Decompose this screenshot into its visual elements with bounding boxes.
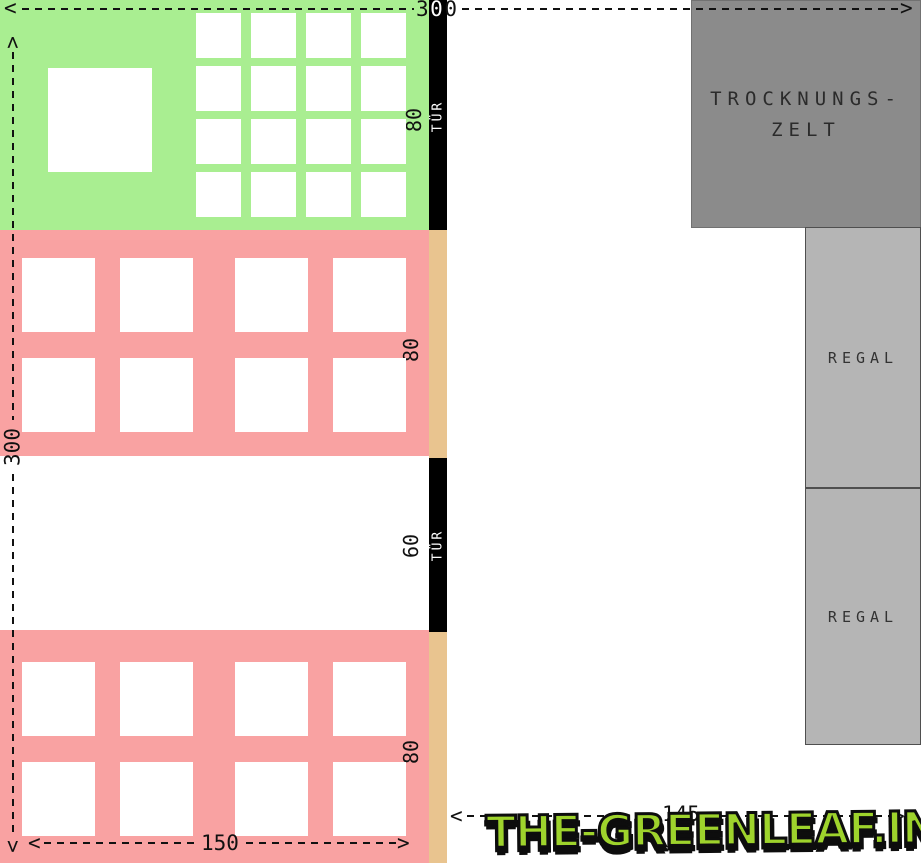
watermark-logo: THE-GREENLEAF.IN [486, 807, 921, 856]
plant-cell [306, 172, 351, 217]
shelf-2-label: REGAL [828, 608, 898, 626]
shelf-2-box: REGAL [805, 488, 921, 745]
arrow-right-icon: > [900, 0, 913, 19]
arrow-left-icon: < [450, 806, 463, 827]
pot-cell [333, 358, 406, 432]
shelf-1-label: REGAL [828, 349, 898, 367]
door-top-bar: TÜR [429, 0, 447, 231]
shelf-1-box: REGAL [805, 227, 921, 488]
dim-top-label: 300 [416, 0, 458, 20]
plant-cell [196, 119, 241, 164]
dim-left-label: 300 [3, 428, 24, 466]
pot-cell [333, 258, 406, 332]
plant-cell [306, 119, 351, 164]
plant-cell [196, 13, 241, 58]
plant-cell [361, 13, 406, 58]
pot-cell [120, 258, 193, 332]
dim-top-line-seg1 [22, 8, 414, 10]
dim-top-line-seg2 [462, 8, 898, 10]
pot-cell [235, 258, 308, 332]
door-mid-width-label: 60 [399, 534, 423, 558]
dim-bottom-label: 150 [201, 833, 239, 854]
pot-cell [235, 762, 308, 836]
plant-cell [361, 119, 406, 164]
bed2-width-label: 80 [399, 740, 423, 764]
arrow-right-icon: > [397, 833, 410, 854]
dim-left-line-seg1 [12, 52, 14, 420]
drying-tent-label-line1: TROCKNUNGS- [710, 88, 902, 110]
plant-cell [361, 172, 406, 217]
plant-cell [251, 119, 296, 164]
pot-cell [120, 662, 193, 736]
white-square-large [48, 68, 152, 172]
pot-cell [22, 358, 95, 432]
pot-cell [22, 762, 95, 836]
door-top-label: TÜR [431, 99, 446, 131]
drying-tent-box: TROCKNUNGS- ZELT [691, 0, 921, 228]
dim-bottom-line-seg2 [246, 842, 396, 844]
pot-cell [22, 258, 95, 332]
dim-bottom-line-seg1 [44, 842, 197, 844]
pot-cell [22, 662, 95, 736]
plant-cell [196, 66, 241, 111]
wall-strip-1 [429, 230, 447, 458]
plant-cell [306, 66, 351, 111]
pot-cell [120, 358, 193, 432]
plant-cell [251, 13, 296, 58]
plant-cell [251, 66, 296, 111]
floor-plan: TÜR TÜR 80 80 60 80 TROCKNUNGS- ZELT REG… [0, 0, 921, 863]
arrow-left-icon: < [4, 0, 17, 19]
door-mid-label: TÜR [431, 529, 446, 561]
plant-cell [196, 172, 241, 217]
arrow-left-icon: < [28, 833, 41, 854]
plant-cell [361, 66, 406, 111]
dim-left-line-seg2 [12, 474, 14, 834]
plant-cell [306, 13, 351, 58]
pot-cell [235, 662, 308, 736]
arrow-down-icon: > [2, 840, 23, 853]
pot-cell [120, 762, 193, 836]
plant-cell [251, 172, 296, 217]
door-mid-bar: TÜR [429, 458, 447, 632]
pot-cell [333, 662, 406, 736]
wall-strip-2 [429, 632, 447, 863]
pot-cell [235, 358, 308, 432]
arrow-up-icon: < [2, 36, 23, 49]
drying-tent-label-line2: ZELT [771, 119, 841, 141]
pot-cell [333, 762, 406, 836]
